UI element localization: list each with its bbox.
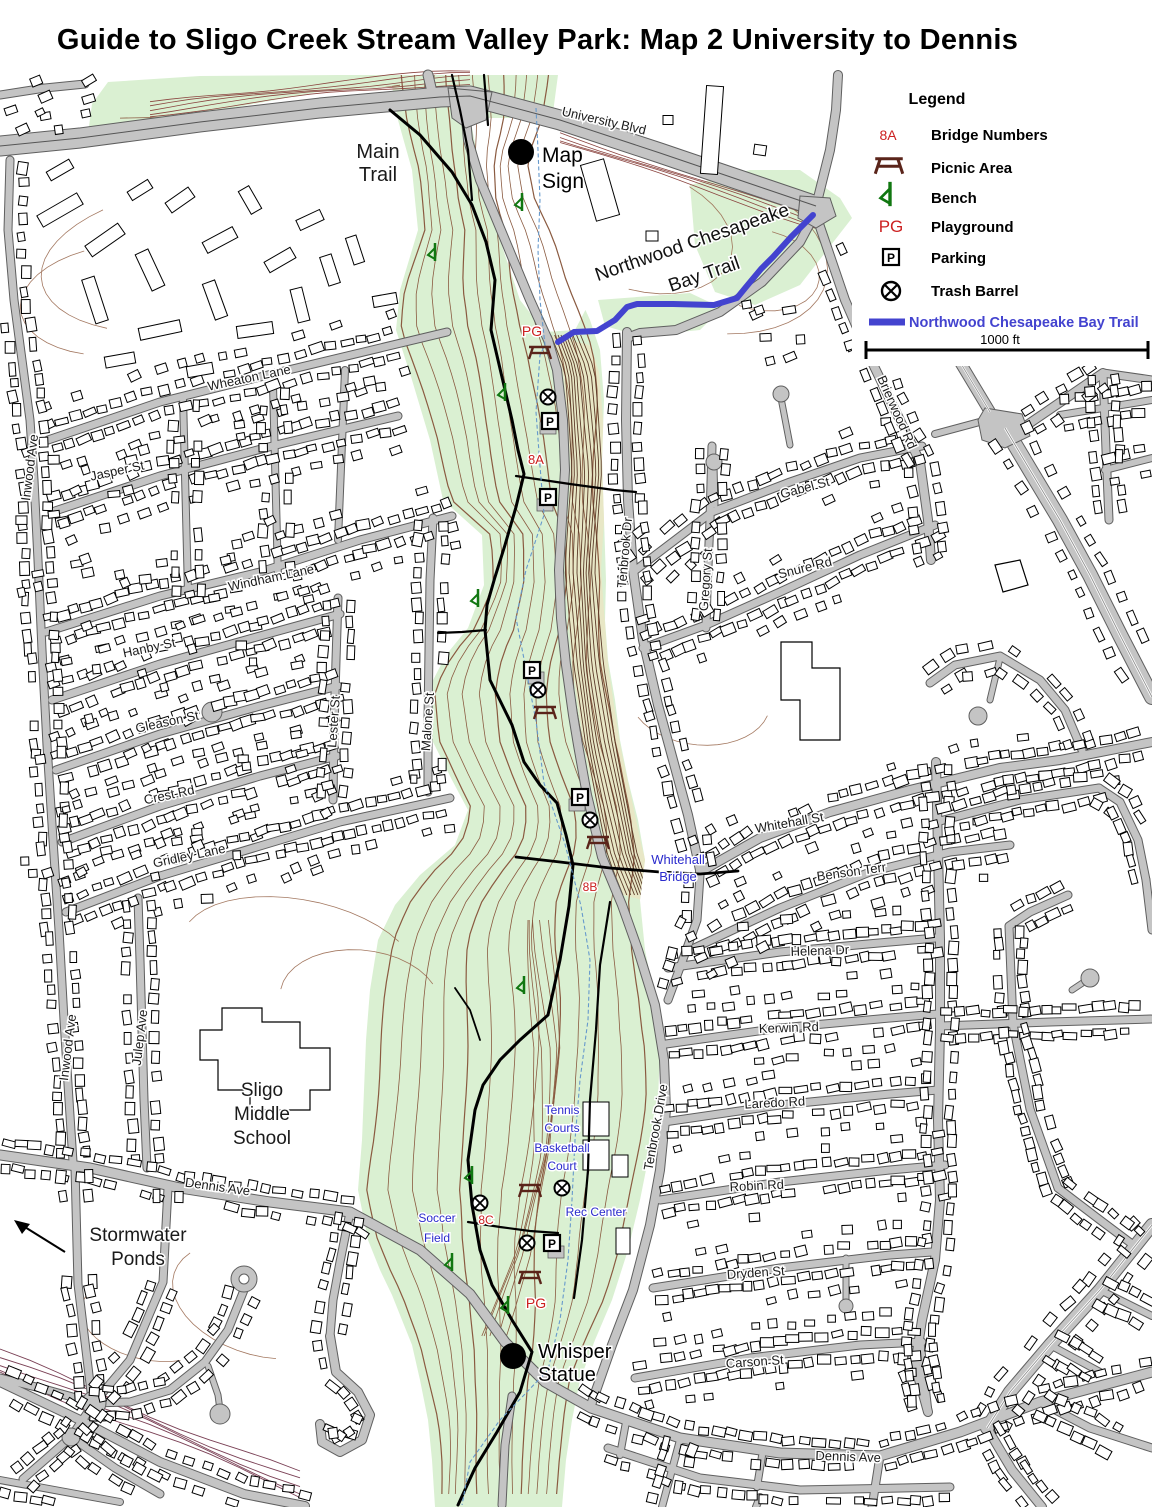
svg-text:Bench: Bench <box>931 190 977 207</box>
svg-text:School: School <box>233 1128 291 1149</box>
svg-text:Courts: Courts <box>544 1121 579 1135</box>
svg-text:Bridge Numbers: Bridge Numbers <box>931 127 1048 144</box>
svg-text:Soccer: Soccer <box>418 1211 455 1225</box>
svg-text:Northwood Chesapeake Bay Trail: Northwood Chesapeake Bay Trail <box>909 315 1139 331</box>
svg-text:P: P <box>546 415 554 429</box>
svg-text:Playground: Playground <box>931 219 1014 236</box>
svg-text:Statue: Statue <box>538 1364 596 1386</box>
svg-text:Robin Rd: Robin Rd <box>729 1177 784 1195</box>
svg-text:Middle: Middle <box>234 1104 290 1125</box>
svg-text:Picnic Area: Picnic Area <box>931 160 1013 177</box>
svg-text:Whitehall: Whitehall <box>651 852 705 867</box>
svg-text:Laredo Rd: Laredo Rd <box>744 1093 805 1111</box>
svg-text:Field: Field <box>424 1231 450 1245</box>
svg-text:Trash Barrel: Trash Barrel <box>931 283 1019 300</box>
svg-text:Helena Dr: Helena Dr <box>790 942 850 959</box>
svg-text:PG: PG <box>526 1295 546 1311</box>
svg-text:Main: Main <box>356 141 399 163</box>
svg-text:Court: Court <box>547 1159 577 1173</box>
svg-text:P: P <box>528 664 536 678</box>
svg-text:8C: 8C <box>478 1213 494 1227</box>
svg-text:Sign: Sign <box>542 170 584 193</box>
svg-text:Whisper: Whisper <box>538 1341 612 1363</box>
svg-text:8A: 8A <box>879 127 897 143</box>
svg-text:PG: PG <box>522 323 542 339</box>
svg-text:Trail: Trail <box>359 164 397 186</box>
svg-text:Dennis Ave: Dennis Ave <box>815 1448 881 1465</box>
svg-text:Stormwater: Stormwater <box>89 1225 187 1246</box>
svg-text:1000 ft: 1000 ft <box>980 332 1020 347</box>
svg-text:Tennis: Tennis <box>545 1103 580 1117</box>
svg-text:Sligo: Sligo <box>241 1080 283 1101</box>
svg-text:Bridge: Bridge <box>659 869 697 884</box>
svg-text:PG: PG <box>879 217 904 236</box>
svg-text:P: P <box>576 791 584 805</box>
svg-text:Basketball: Basketball <box>534 1141 589 1155</box>
svg-text:8A: 8A <box>528 452 544 467</box>
svg-text:Rec Center: Rec Center <box>566 1205 627 1219</box>
svg-text:Ponds: Ponds <box>111 1249 165 1270</box>
svg-text:8B: 8B <box>583 880 598 894</box>
svg-text:Legend: Legend <box>909 91 966 108</box>
svg-text:P: P <box>544 491 552 505</box>
svg-text:P: P <box>887 251 895 265</box>
svg-text:P: P <box>548 1237 556 1251</box>
svg-text:Map: Map <box>542 144 583 167</box>
svg-text:Parking: Parking <box>931 250 986 267</box>
svg-text:Kerwin Rd: Kerwin Rd <box>759 1019 819 1036</box>
